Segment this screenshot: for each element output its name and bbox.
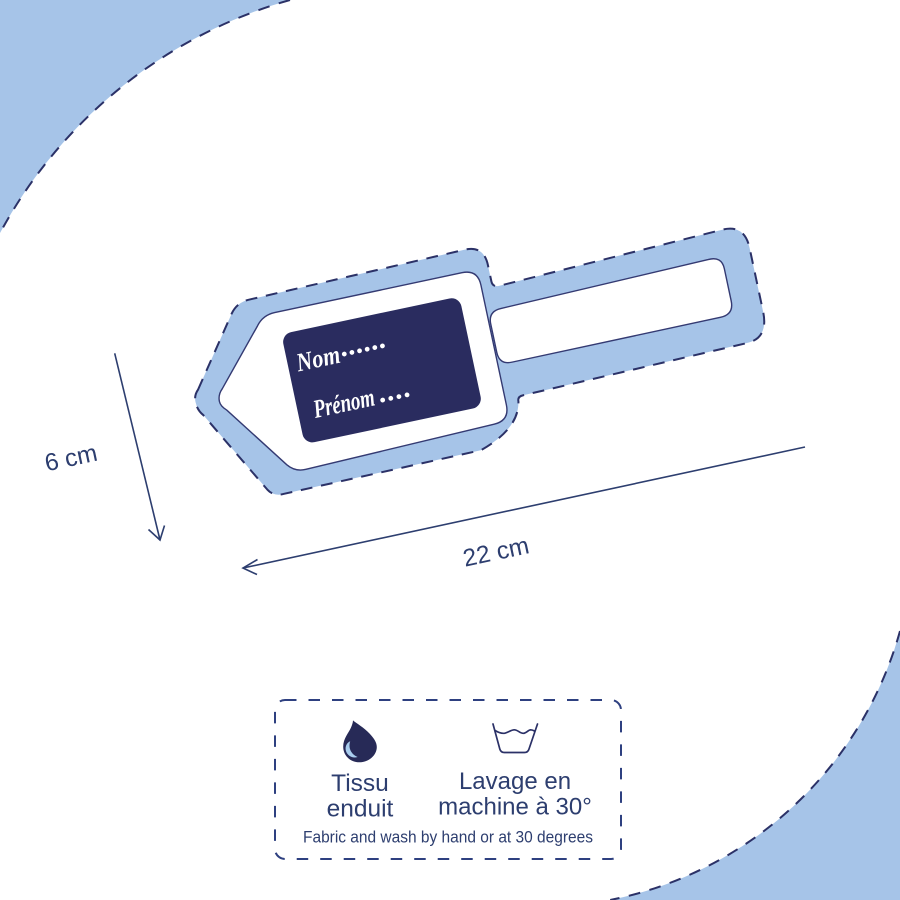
svg-text:6 cm: 6 cm: [42, 440, 100, 477]
svg-text:Tissu: Tissu: [331, 770, 389, 797]
svg-text:machine à 30°: machine à 30°: [438, 794, 592, 821]
svg-text:22 cm: 22 cm: [461, 532, 532, 572]
svg-text:enduit: enduit: [327, 796, 394, 823]
svg-text:Lavage en: Lavage en: [459, 768, 571, 795]
svg-text:Fabric and wash by hand or at: Fabric and wash by hand or at 30 degrees: [303, 828, 593, 847]
